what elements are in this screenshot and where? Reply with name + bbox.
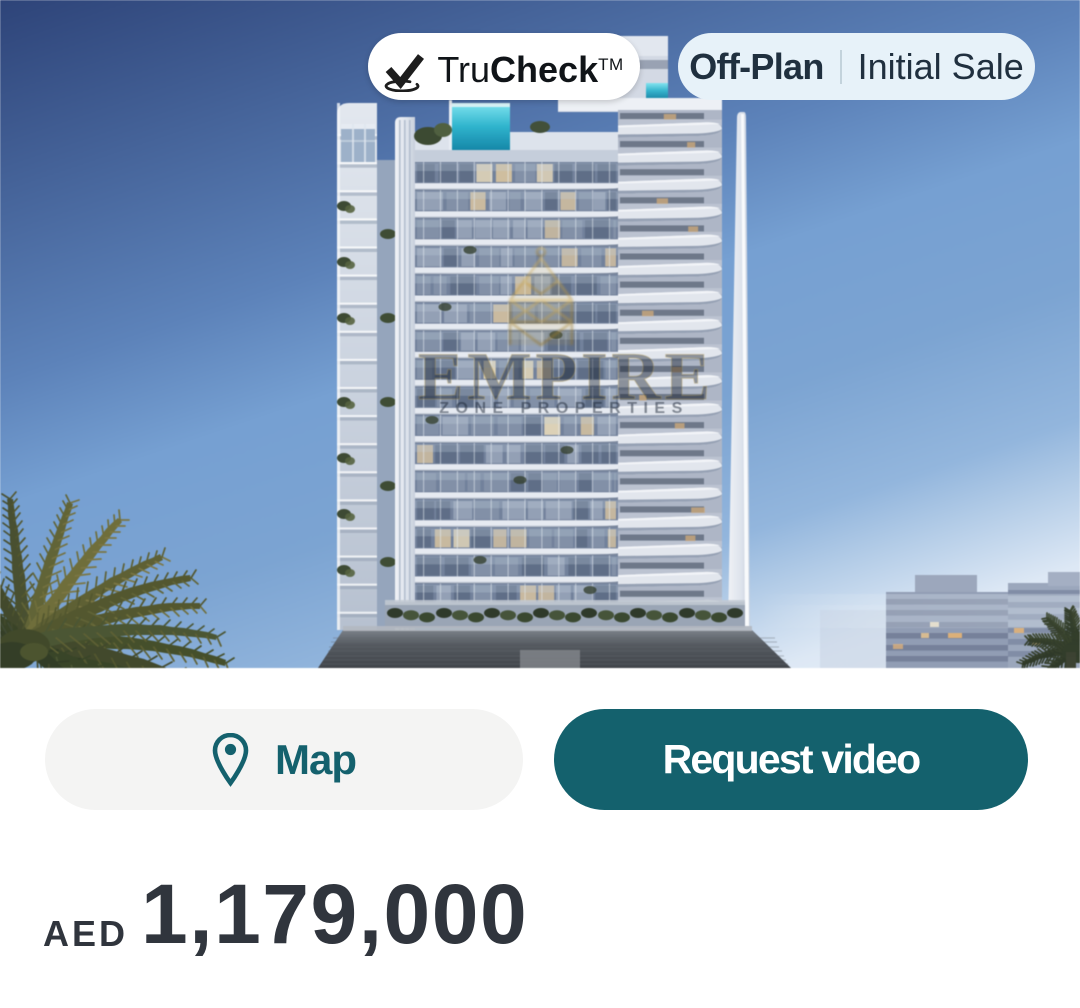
svg-text:ZONE PROPERTIES: ZONE PROPERTIES [439,400,689,417]
